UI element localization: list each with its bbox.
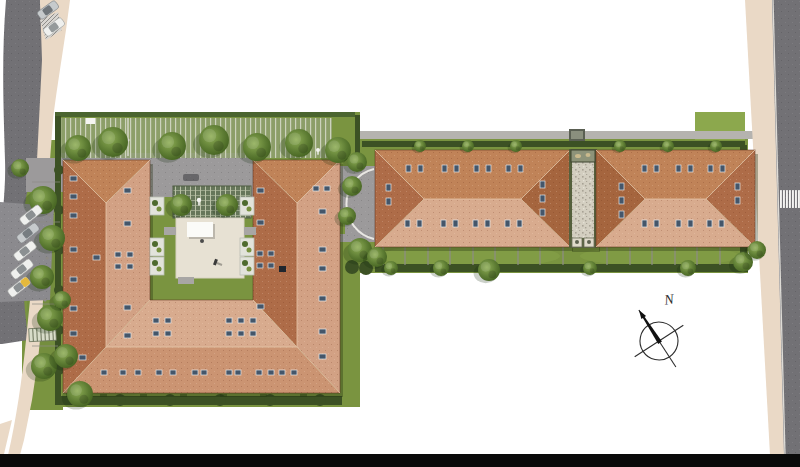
footer-bar	[0, 454, 800, 467]
sign-panel	[86, 118, 95, 124]
site-plan-canvas: N	[0, 0, 800, 467]
canopy	[187, 222, 213, 237]
site-plan-rendering: N	[0, 0, 800, 467]
central-gravel-court	[569, 149, 597, 248]
